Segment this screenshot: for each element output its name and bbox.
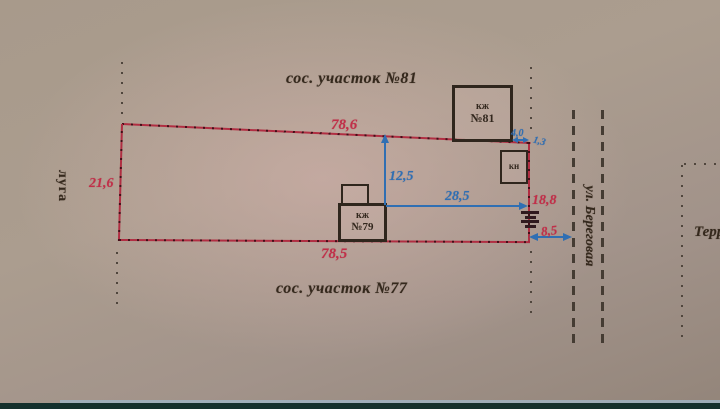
territory-dotted-line-horizontal: [684, 163, 720, 165]
dim-1-3: 1,3: [532, 135, 547, 149]
building-kn-label: кн: [509, 162, 519, 171]
dim-4-0: 4,0: [511, 128, 524, 139]
cadastral-plan-photo: кж №81 кн кж №79 сос. участок №81 сос. у…: [0, 0, 720, 409]
building-79-number-label: №79: [351, 222, 373, 234]
building-81: кж №81: [452, 85, 513, 142]
street-name-label: ул. Береговая: [581, 171, 597, 281]
gate-symbol-icon: [521, 211, 539, 229]
street-edge-left-dashed-line: [572, 105, 575, 343]
neighbor-plot-77-label: сос. участок №77: [276, 280, 407, 298]
dim-right-18-8: 18,8: [532, 193, 557, 209]
territory-dotted-line-vertical: [681, 163, 683, 337]
meadow-label: луга: [54, 170, 70, 202]
building-79-annex: [341, 184, 369, 205]
dimension-line-12-5: [384, 142, 386, 205]
dim-top-78-6: 78,6: [331, 117, 357, 134]
photo-bottom-edge: [0, 403, 720, 409]
dim-left-21-6: 21,6: [89, 176, 114, 192]
boundary-bottom-line: [119, 239, 530, 243]
dim-gate-8-5: 8,5: [540, 222, 558, 240]
building-79: кж №79: [338, 203, 387, 242]
dotted-line-right-top: [530, 65, 532, 129]
territory-label: Терр: [694, 224, 720, 241]
boundary-left-line: [118, 124, 123, 241]
dim-28-5: 28,5: [445, 189, 470, 205]
street-edge-right-dashed-line: [601, 105, 604, 343]
neighbor-plot-81-label: сос. участок №81: [286, 70, 417, 88]
dim-12-5: 12,5: [389, 169, 414, 185]
building-kn: кн: [500, 150, 528, 184]
dotted-line-left-bottom: [116, 246, 118, 304]
dimension-line-28-5: [386, 205, 521, 207]
building-81-number-label: №81: [470, 112, 494, 125]
arrow-right-icon: [519, 202, 528, 210]
dim-bottom-78-5: 78,5: [321, 246, 347, 263]
dotted-line-right-bottom: [530, 247, 532, 313]
arrow-right-icon: [563, 233, 572, 241]
dotted-line-left-top: [121, 62, 123, 114]
